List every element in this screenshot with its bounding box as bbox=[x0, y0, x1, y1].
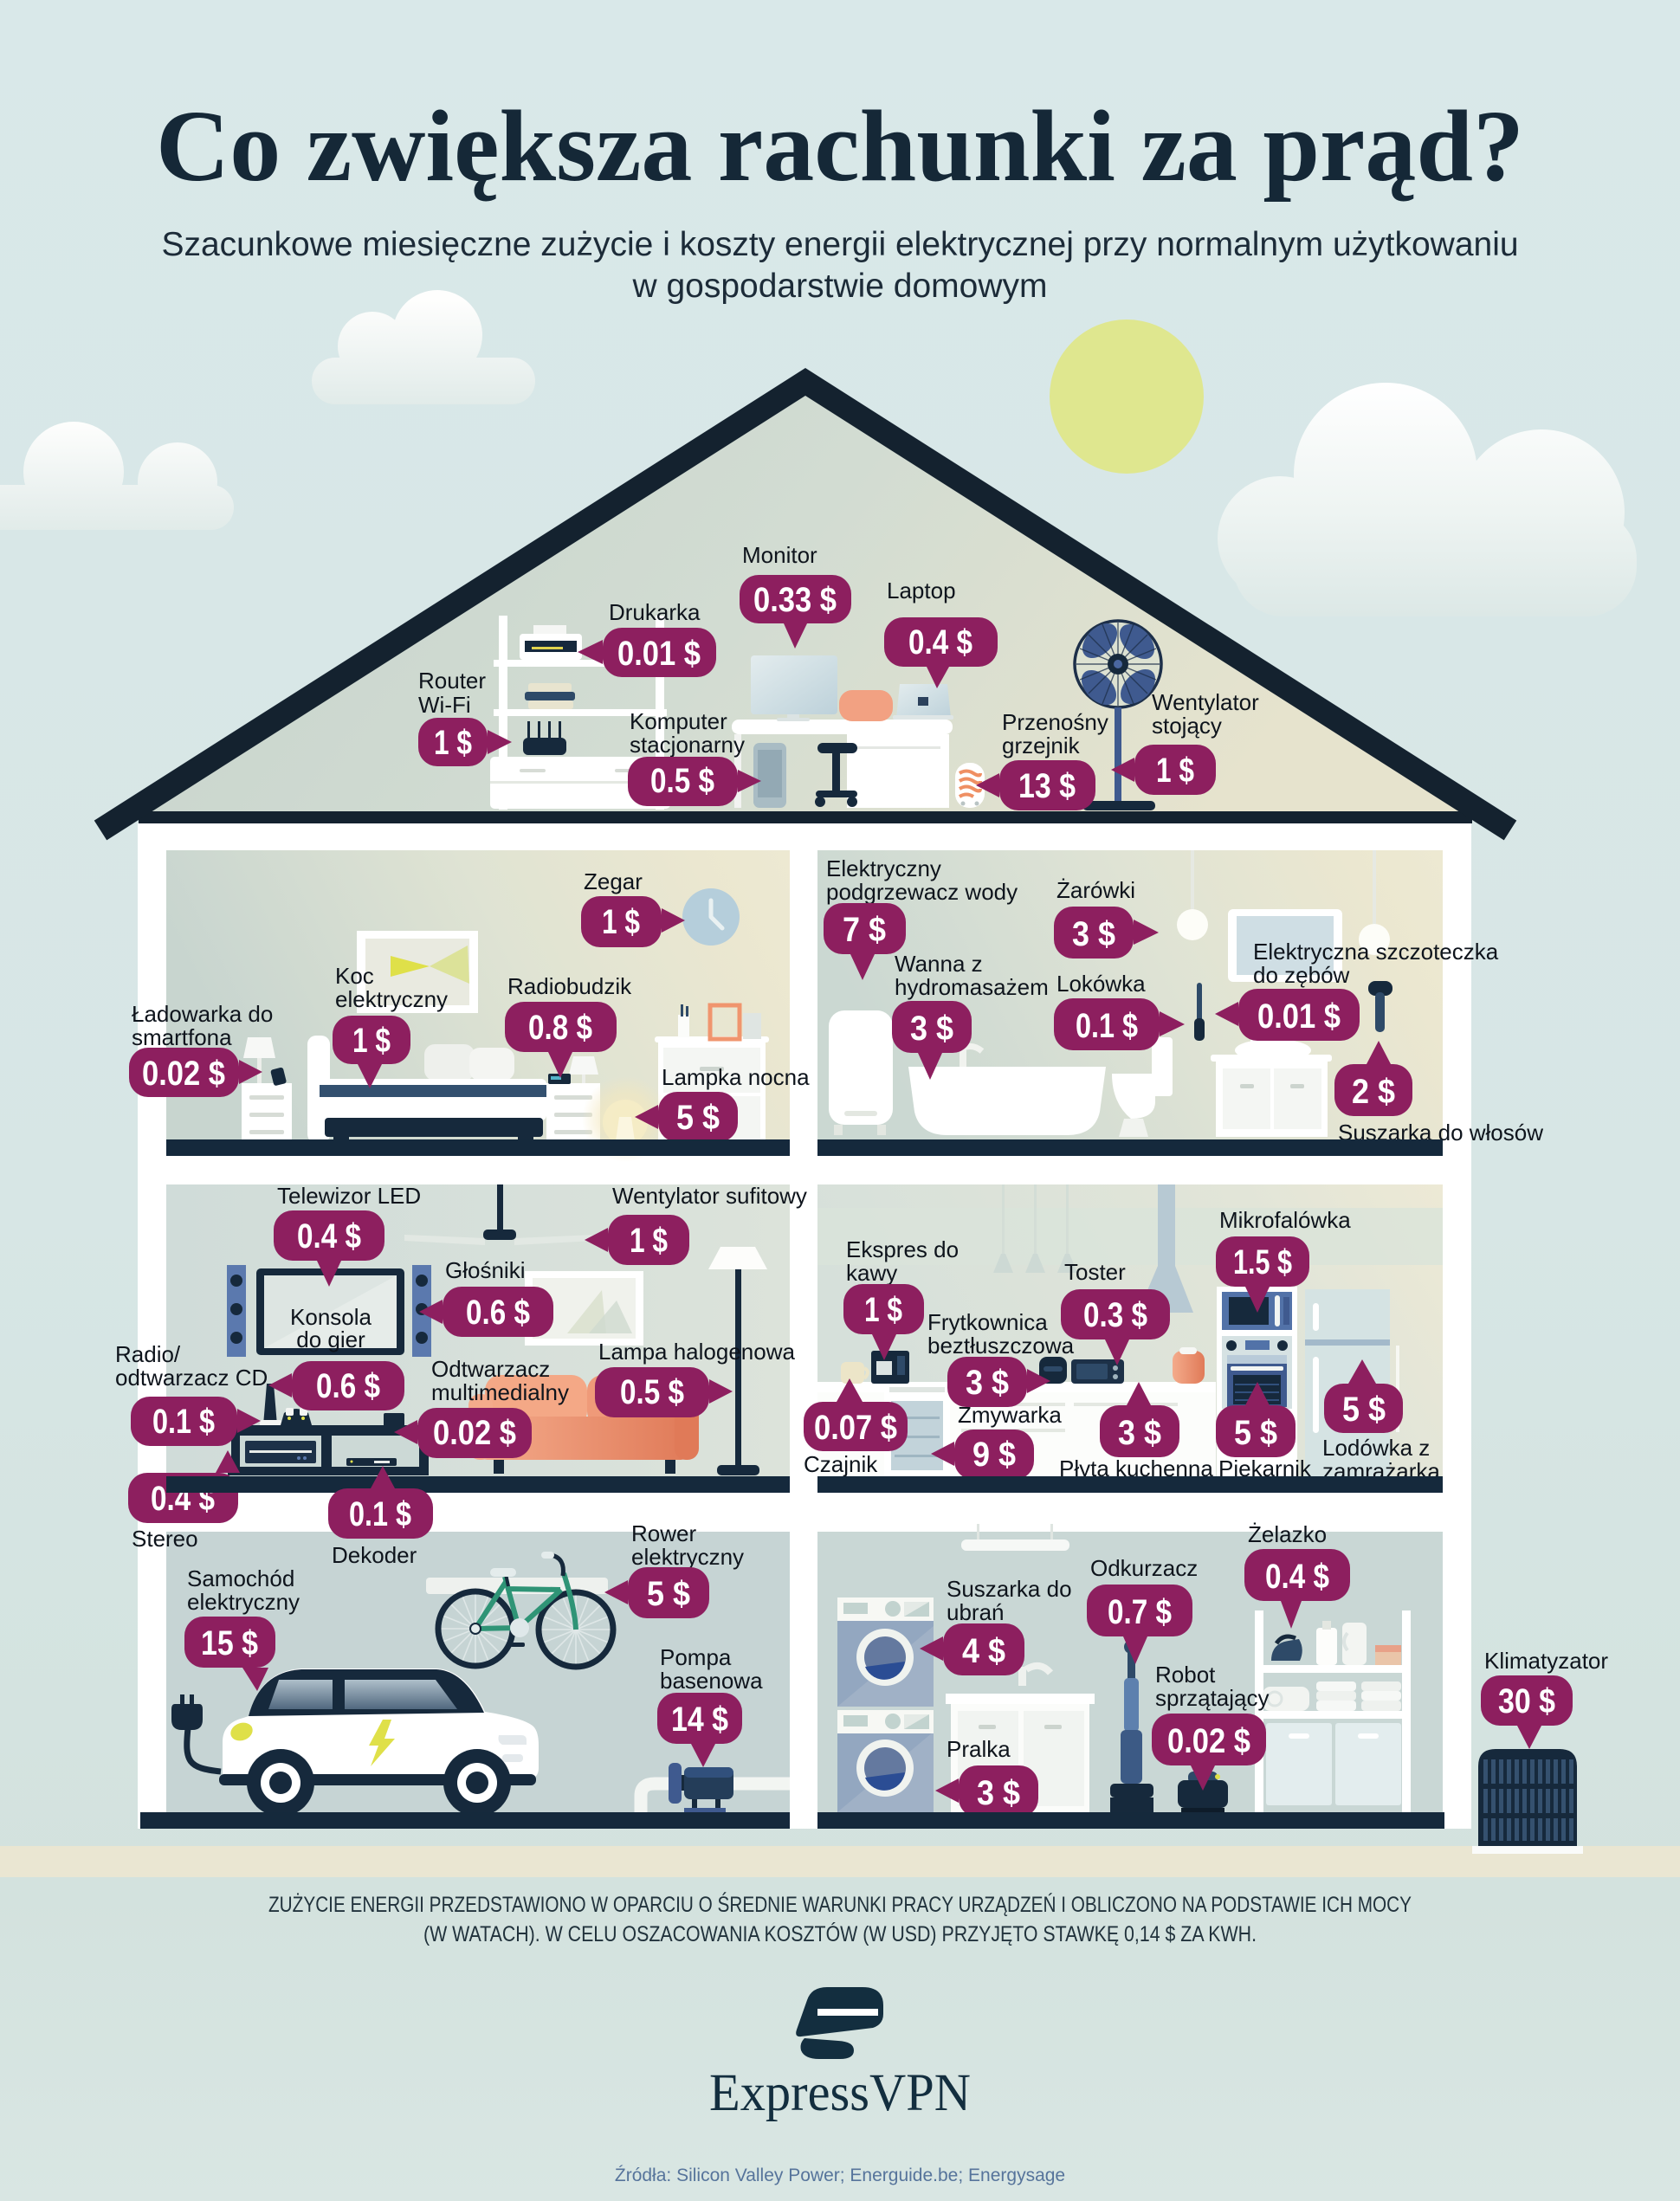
svg-text:ubrań: ubrań bbox=[947, 1599, 1005, 1625]
svg-text:0.02 $: 0.02 $ bbox=[142, 1055, 225, 1093]
svg-text:Drukarka: Drukarka bbox=[609, 599, 701, 625]
svg-text:Żelazko: Żelazko bbox=[1248, 1521, 1327, 1547]
svg-text:5 $: 5 $ bbox=[1342, 1391, 1386, 1429]
svg-text:0.1 $: 0.1 $ bbox=[1076, 1007, 1138, 1045]
svg-text:3 $: 3 $ bbox=[1072, 915, 1115, 953]
svg-text:Samochód: Samochód bbox=[187, 1565, 294, 1591]
svg-text:15 $: 15 $ bbox=[201, 1624, 258, 1662]
svg-text:Mikrofalówka: Mikrofalówka bbox=[1219, 1207, 1351, 1233]
svg-text:Pompa: Pompa bbox=[660, 1644, 732, 1670]
svg-text:1 $: 1 $ bbox=[602, 903, 640, 941]
svg-text:0.7 $: 0.7 $ bbox=[1108, 1593, 1172, 1631]
svg-text:14 $: 14 $ bbox=[671, 1701, 728, 1739]
svg-text:0.07 $: 0.07 $ bbox=[814, 1409, 897, 1447]
svg-text:Stereo: Stereo bbox=[132, 1526, 198, 1552]
svg-text:Zegar: Zegar bbox=[584, 868, 643, 894]
svg-text:5 $: 5 $ bbox=[647, 1575, 690, 1613]
svg-text:Elektryczna szczoteczka: Elektryczna szczoteczka bbox=[1253, 939, 1499, 965]
svg-text:Wentylator: Wentylator bbox=[1152, 689, 1259, 715]
svg-text:Router: Router bbox=[418, 668, 486, 694]
svg-text:sprzątający: sprzątający bbox=[1155, 1685, 1270, 1711]
svg-text:Lodówka z: Lodówka z bbox=[1322, 1435, 1430, 1461]
svg-text:0.4 $: 0.4 $ bbox=[908, 623, 972, 662]
svg-text:0.6 $: 0.6 $ bbox=[316, 1367, 380, 1405]
svg-text:3 $: 3 $ bbox=[966, 1364, 1009, 1402]
svg-text:Głośniki: Głośniki bbox=[445, 1257, 525, 1283]
svg-text:do gier: do gier bbox=[296, 1326, 365, 1352]
svg-text:Wi-Fi: Wi-Fi bbox=[418, 692, 471, 718]
svg-text:Lampa halogenowa: Lampa halogenowa bbox=[598, 1339, 795, 1365]
svg-text:0.6 $: 0.6 $ bbox=[466, 1294, 530, 1332]
svg-text:0.1 $: 0.1 $ bbox=[152, 1403, 215, 1441]
svg-text:0.5 $: 0.5 $ bbox=[650, 762, 714, 800]
svg-text:1 $: 1 $ bbox=[630, 1222, 668, 1260]
svg-text:0.4 $: 0.4 $ bbox=[1265, 1558, 1329, 1596]
svg-text:0.4 $: 0.4 $ bbox=[297, 1217, 361, 1255]
svg-text:1 $: 1 $ bbox=[352, 1022, 391, 1060]
svg-text:Lampka nocna: Lampka nocna bbox=[662, 1064, 810, 1090]
svg-text:3 $: 3 $ bbox=[910, 1010, 953, 1048]
svg-text:Frytkownica: Frytkownica bbox=[927, 1309, 1048, 1335]
svg-text:0.01 $: 0.01 $ bbox=[1257, 997, 1341, 1036]
svg-text:w gospodarstwie domowym: w gospodarstwie domowym bbox=[631, 268, 1047, 305]
svg-text:Laptop: Laptop bbox=[887, 578, 956, 603]
svg-text:Przenośny: Przenośny bbox=[1002, 709, 1108, 735]
svg-text:ZUŻYCIE ENERGII PRZEDSTAWIONO: ZUŻYCIE ENERGII PRZEDSTAWIONO W OPARCIU … bbox=[268, 1891, 1412, 1917]
svg-text:Źródła: Silicon Valley Power;: Źródła: Silicon Valley Power; Energuide.… bbox=[615, 2165, 1065, 2185]
svg-text:hydromasażem: hydromasażem bbox=[895, 974, 1049, 1000]
svg-text:Toster: Toster bbox=[1064, 1259, 1126, 1285]
svg-text:Komputer: Komputer bbox=[630, 708, 727, 734]
svg-text:elektryczny: elektryczny bbox=[631, 1544, 744, 1570]
svg-text:0.01 $: 0.01 $ bbox=[617, 635, 701, 673]
svg-text:Monitor: Monitor bbox=[742, 542, 817, 568]
svg-text:multimedialny: multimedialny bbox=[431, 1379, 569, 1405]
svg-text:grzejnik: grzejnik bbox=[1002, 733, 1081, 758]
svg-text:Elektryczny: Elektryczny bbox=[826, 855, 941, 881]
svg-text:kawy: kawy bbox=[846, 1260, 897, 1286]
svg-text:0.02 $: 0.02 $ bbox=[433, 1414, 516, 1452]
svg-text:Klimatyzator: Klimatyzator bbox=[1484, 1648, 1608, 1674]
svg-text:5 $: 5 $ bbox=[676, 1099, 720, 1137]
svg-text:odtwarzacz CD: odtwarzacz CD bbox=[115, 1365, 268, 1391]
svg-text:podgrzewacz wody: podgrzewacz wody bbox=[826, 879, 1018, 905]
svg-text:0.33 $: 0.33 $ bbox=[753, 581, 837, 619]
svg-text:basenowa: basenowa bbox=[660, 1668, 763, 1694]
svg-text:Koc: Koc bbox=[335, 963, 374, 989]
svg-text:stojący: stojący bbox=[1152, 713, 1222, 739]
svg-text:stacjonarny: stacjonarny bbox=[630, 732, 745, 758]
svg-text:smartfona: smartfona bbox=[132, 1024, 232, 1050]
svg-text:5 $: 5 $ bbox=[1234, 1414, 1277, 1452]
svg-text:7 $: 7 $ bbox=[843, 911, 886, 949]
svg-text:Odkurzacz: Odkurzacz bbox=[1090, 1555, 1198, 1581]
svg-text:1 $: 1 $ bbox=[434, 724, 472, 762]
svg-text:Lokówka: Lokówka bbox=[1056, 971, 1146, 997]
svg-text:9 $: 9 $ bbox=[972, 1436, 1016, 1474]
svg-text:1 $: 1 $ bbox=[864, 1291, 902, 1329]
svg-text:Rower: Rower bbox=[631, 1520, 696, 1546]
svg-text:ExpressVPN: ExpressVPN bbox=[709, 2064, 971, 2122]
svg-text:1 $: 1 $ bbox=[1156, 752, 1194, 790]
svg-text:Żarówki: Żarówki bbox=[1056, 877, 1135, 903]
svg-text:Radiobudzik: Radiobudzik bbox=[507, 973, 632, 999]
svg-text:0.8 $: 0.8 $ bbox=[528, 1009, 592, 1047]
svg-text:Suszarka do: Suszarka do bbox=[947, 1576, 1072, 1602]
svg-text:Ekspres do: Ekspres do bbox=[846, 1236, 959, 1262]
svg-text:1.5 $: 1.5 $ bbox=[1233, 1243, 1292, 1281]
svg-text:30 $: 30 $ bbox=[1498, 1682, 1555, 1720]
svg-text:do zębów: do zębów bbox=[1253, 962, 1350, 988]
svg-text:3 $: 3 $ bbox=[977, 1774, 1020, 1812]
svg-text:Odtwarzacz: Odtwarzacz bbox=[431, 1356, 550, 1382]
svg-text:Dekoder: Dekoder bbox=[332, 1542, 417, 1568]
svg-text:Zmywarka: Zmywarka bbox=[958, 1402, 1062, 1428]
svg-text:Szacunkowe miesięczne zużycie: Szacunkowe miesięczne zużycie i koszty e… bbox=[161, 226, 1518, 263]
svg-text:4 $: 4 $ bbox=[962, 1632, 1005, 1670]
svg-text:Robot: Robot bbox=[1155, 1662, 1216, 1688]
svg-text:2 $: 2 $ bbox=[1352, 1073, 1395, 1111]
svg-text:Ładowarka do: Ładowarka do bbox=[132, 1001, 273, 1027]
svg-text:Pralka: Pralka bbox=[947, 1736, 1011, 1762]
svg-text:elektryczny: elektryczny bbox=[335, 986, 448, 1012]
svg-text:3 $: 3 $ bbox=[1118, 1414, 1161, 1452]
svg-text:13 $: 13 $ bbox=[1018, 767, 1076, 805]
svg-text:Radio/: Radio/ bbox=[115, 1341, 181, 1367]
svg-text:Wanna z: Wanna z bbox=[895, 951, 983, 977]
svg-text:0.5 $: 0.5 $ bbox=[620, 1373, 684, 1411]
svg-text:0.1 $: 0.1 $ bbox=[349, 1495, 411, 1533]
svg-text:Co zwiększa rachunki za prąd?: Co zwiększa rachunki za prąd? bbox=[156, 89, 1524, 203]
svg-text:0.3 $: 0.3 $ bbox=[1083, 1296, 1147, 1334]
svg-text:elektryczny: elektryczny bbox=[187, 1589, 300, 1615]
svg-text:Czajnik: Czajnik bbox=[804, 1451, 878, 1477]
svg-text:(W WATACH). W CELU OSZACOWANIA: (W WATACH). W CELU OSZACOWANIA KOSZTÓW (… bbox=[423, 1921, 1257, 1946]
svg-text:Wentylator sufitowy: Wentylator sufitowy bbox=[612, 1183, 807, 1209]
svg-text:0.02 $: 0.02 $ bbox=[1167, 1722, 1250, 1760]
svg-text:Telewizor LED: Telewizor LED bbox=[277, 1183, 421, 1209]
svg-text:beztłuszczowa: beztłuszczowa bbox=[927, 1333, 1075, 1359]
